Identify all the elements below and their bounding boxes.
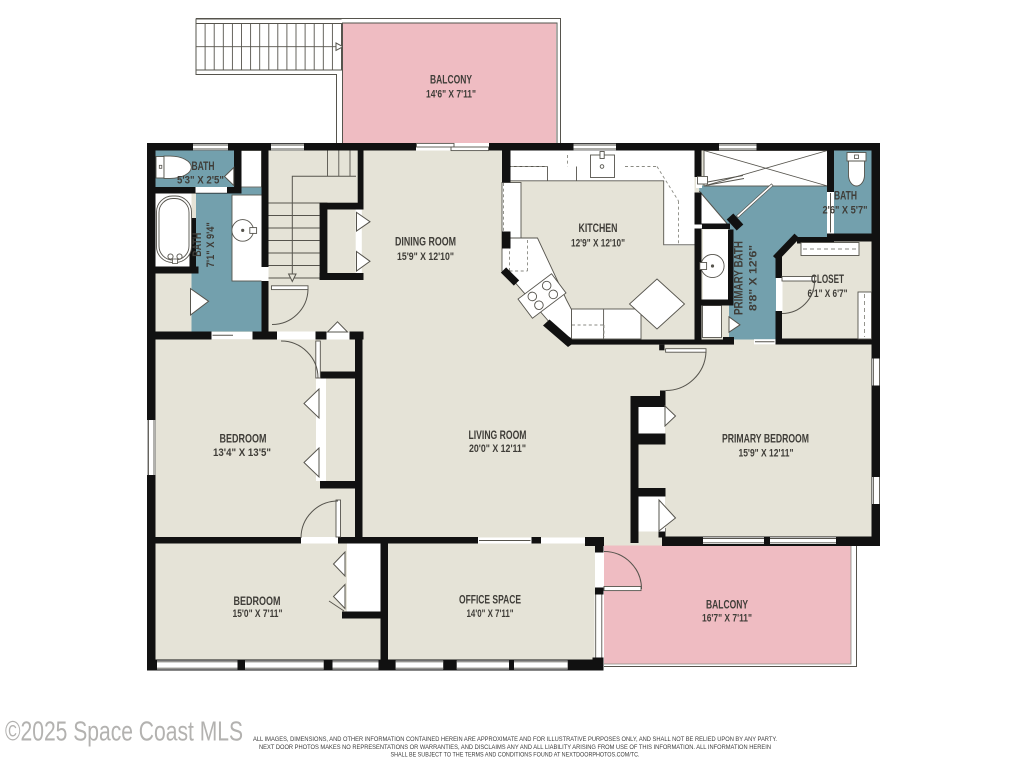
svg-text:NEXT DOOR PHOTOS MAKES NO REPR: NEXT DOOR PHOTOS MAKES NO REPRESENTATION… [259, 744, 771, 751]
svg-text:15'0" X 7'11": 15'0" X 7'11" [233, 608, 283, 620]
svg-text:PRIMARY BEDROOM: PRIMARY BEDROOM [722, 432, 809, 446]
svg-text:15'9" X 12'11": 15'9" X 12'11" [739, 448, 794, 460]
svg-text:PRIMARY BATH: PRIMARY BATH [732, 241, 746, 315]
svg-text:7'1" X 9'4": 7'1" X 9'4" [205, 222, 217, 267]
svg-text:OFFICE SPACE: OFFICE SPACE [459, 593, 521, 607]
svg-text:BEDROOM: BEDROOM [234, 594, 281, 608]
svg-text:5'3" X 2'5": 5'3" X 2'5" [177, 175, 224, 187]
svg-text:DINING ROOM: DINING ROOM [395, 235, 456, 249]
svg-text:14'0" X 7'11": 14'0" X 7'11" [467, 608, 514, 620]
svg-text:15'9" X 12'10": 15'9" X 12'10" [397, 251, 454, 263]
svg-text:12'9" X 12'10": 12'9" X 12'10" [571, 238, 625, 250]
svg-text:©2025 Space Coast MLS: ©2025 Space Coast MLS [5, 716, 243, 747]
svg-text:BEDROOM: BEDROOM [220, 432, 267, 446]
svg-text:20'0" X 12'11": 20'0" X 12'11" [469, 443, 526, 455]
svg-text:LIVING ROOM: LIVING ROOM [469, 428, 527, 442]
svg-text:BALCONY: BALCONY [706, 598, 748, 612]
svg-text:13'4" X 13'5": 13'4" X 13'5" [213, 447, 271, 459]
svg-text:14'6" X 7'11": 14'6" X 7'11" [426, 89, 476, 101]
svg-text:6'1" X 6'7": 6'1" X 6'7" [808, 288, 848, 300]
svg-text:SHALL BE SUBJECT TO THE TERMS: SHALL BE SUBJECT TO THE TERMS AND CONDIT… [391, 752, 640, 759]
svg-text:BALCONY: BALCONY [430, 73, 472, 87]
svg-text:BATH: BATH [190, 233, 204, 257]
svg-text:BATH: BATH [834, 189, 857, 203]
svg-text:KITCHEN: KITCHEN [579, 221, 618, 235]
svg-text:CLOSET: CLOSET [811, 272, 844, 286]
svg-text:16'7" X 7'11": 16'7" X 7'11" [702, 613, 752, 625]
svg-text:ALL IMAGES, DIMENSIONS, AND OT: ALL IMAGES, DIMENSIONS, AND OTHER INFORM… [253, 736, 777, 743]
svg-text:BATH: BATH [192, 159, 215, 173]
svg-text:2'6" X 5'7": 2'6" X 5'7" [823, 205, 868, 217]
svg-text:8'8" X 12'6": 8'8" X 12'6" [748, 245, 760, 311]
